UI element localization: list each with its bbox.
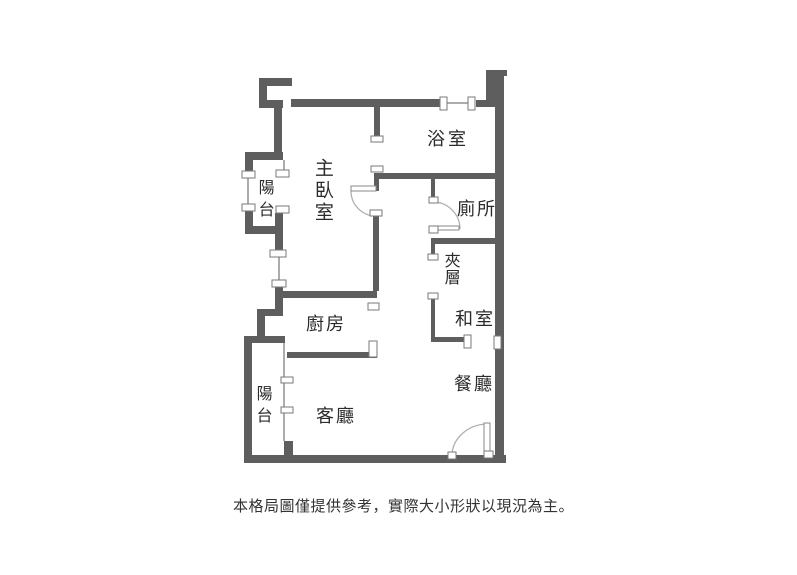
wall — [431, 238, 495, 244]
wall — [274, 100, 282, 156]
floorplan-drawing — [0, 0, 797, 575]
wall-end-cap — [242, 171, 255, 178]
wall-end-cap — [484, 451, 493, 458]
room-label-dining-room: 餐廳 — [454, 375, 494, 395]
wall-end-cap — [468, 97, 475, 110]
wall — [431, 179, 435, 198]
wall-end-cap — [276, 170, 289, 177]
room-label-master-bedroom: 主臥室 — [312, 158, 333, 224]
wall-end-cap — [428, 293, 438, 299]
room-label-bathroom: 浴室 — [427, 130, 469, 150]
wall-end-cap — [369, 341, 377, 357]
wall-end-cap — [272, 280, 286, 287]
wall — [287, 352, 377, 358]
wall-end-cap — [371, 166, 383, 172]
wall — [374, 107, 380, 137]
wall-end-cap — [276, 206, 289, 213]
wall-end-cap — [448, 452, 456, 459]
room-label-toilet: 廁所 — [457, 200, 497, 220]
wall — [431, 297, 435, 340]
wall-end-cap — [281, 407, 293, 413]
room-label-tatami-room: 和室 — [455, 310, 495, 330]
room-label-kitchen: 廚房 — [306, 315, 346, 335]
door-leaf — [351, 186, 376, 191]
wall-end-cap — [428, 254, 438, 260]
wall — [377, 173, 495, 179]
wall-end-cap — [281, 377, 293, 383]
wall — [291, 99, 443, 107]
wall — [244, 336, 252, 463]
room-label-living-room: 客廳 — [316, 407, 356, 427]
room-label-mezzanine: 夾層 — [442, 252, 460, 286]
wall — [244, 455, 506, 463]
wall-end-cap — [440, 97, 447, 110]
room-label-balcony-lower: 陽台 — [254, 385, 272, 429]
wall-end-cap — [464, 335, 471, 348]
wall-end-cap — [370, 210, 382, 216]
wall — [431, 337, 468, 342]
wall — [373, 215, 379, 291]
disclaimer-text: 本格局圖僅提供參考，實際大小形狀以現況為主。 — [233, 495, 574, 516]
wall-end-cap — [429, 226, 438, 233]
wall-end-cap — [270, 250, 286, 257]
wall — [284, 441, 293, 456]
wall — [275, 213, 283, 251]
wall — [257, 309, 265, 337]
door-swing-arc — [433, 202, 460, 229]
wall — [495, 70, 504, 463]
wall-end-cap — [371, 136, 383, 142]
wall-end-cap — [429, 197, 438, 203]
room-label-balcony-upper: 陽台 — [256, 179, 274, 223]
wall — [280, 291, 377, 298]
wall-end-cap — [494, 336, 501, 349]
wall-end-cap — [242, 204, 255, 211]
floorplan-page: 主臥室 浴室 廁所 夾層 和室 廚房 餐廳 客廳 陽台 陽台 本格局圖僅提供參考… — [0, 0, 797, 575]
wall-end-cap — [368, 303, 379, 310]
door-swing-arc — [452, 424, 488, 456]
